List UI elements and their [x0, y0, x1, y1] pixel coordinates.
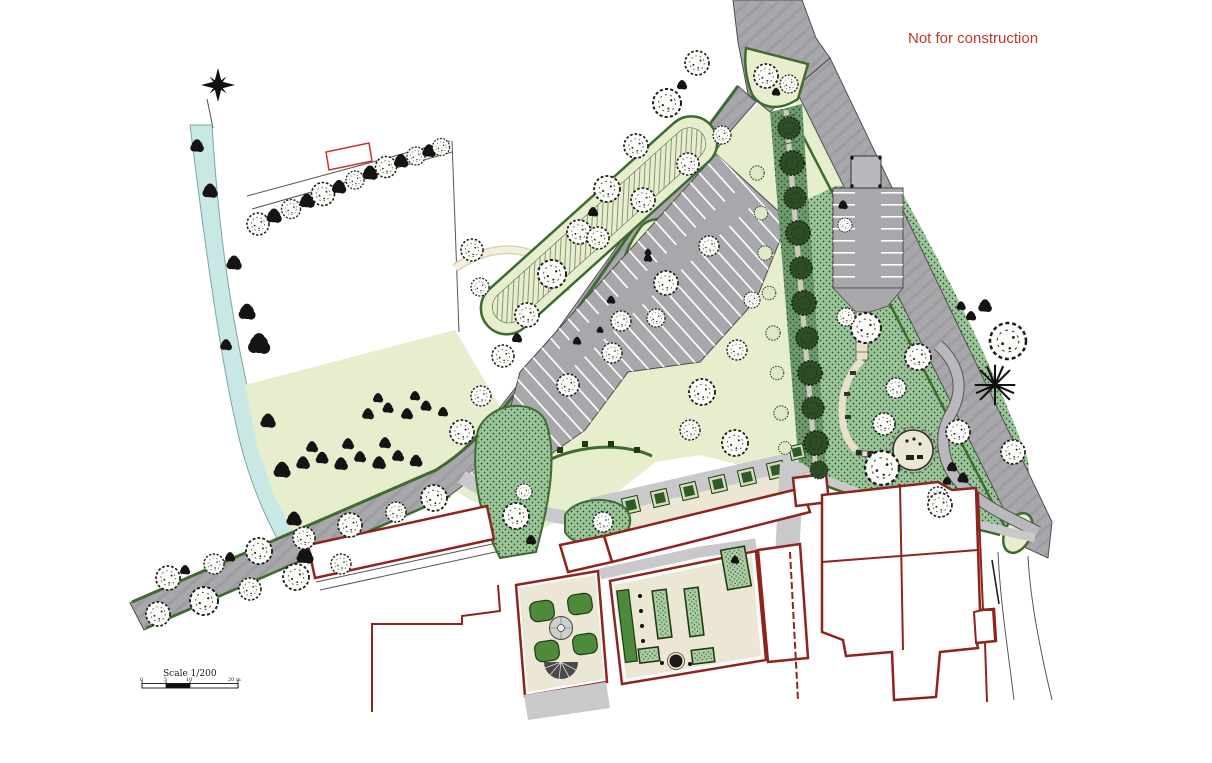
svg-text:10: 10: [186, 677, 192, 683]
red-marker-rectangle: [326, 143, 372, 170]
lane-south-east: [992, 552, 1052, 700]
fountain: [670, 655, 683, 668]
svg-text:5: 5: [164, 677, 167, 683]
building-east-wing: [758, 544, 808, 662]
site-plan-page: Not for construction Scale 1/200 0 5 10 …: [0, 0, 1212, 763]
compass-rose-icon: [201, 68, 235, 102]
site-plan-drawing: Not for construction Scale 1/200 0 5 10 …: [0, 0, 1212, 763]
building-east-complex: [793, 474, 996, 700]
svg-text:0: 0: [140, 677, 143, 683]
scale-bar: Scale 1/200 0 5 10 20 m: [140, 669, 241, 688]
parking-gate: [851, 156, 881, 188]
parterre-garden: [516, 571, 610, 720]
annotation-not-for-construction: Not for construction: [908, 30, 1038, 47]
svg-text:20 m: 20 m: [228, 677, 241, 683]
paddock-field: [207, 99, 459, 332]
